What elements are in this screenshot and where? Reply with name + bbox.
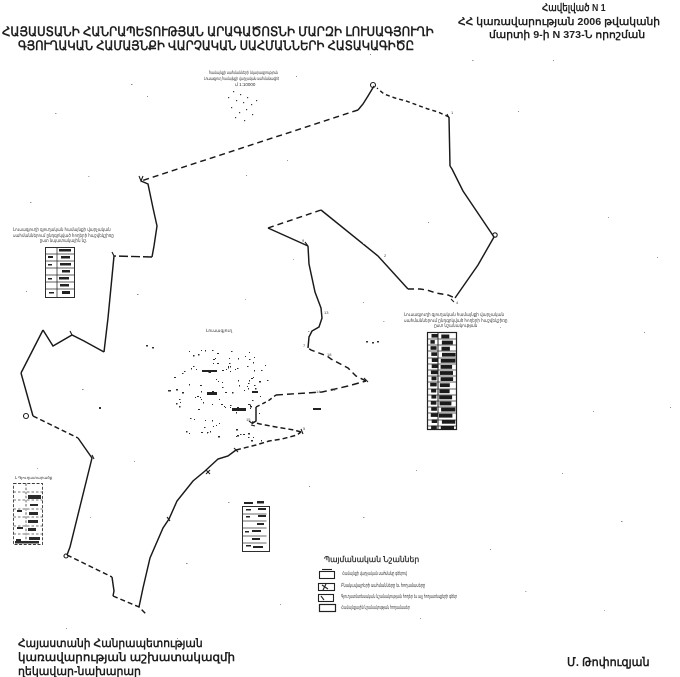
svg-text:5: 5 (303, 426, 306, 431)
svg-text:2: 2 (384, 253, 387, 258)
svg-text:13: 13 (324, 310, 329, 315)
svg-text:24: 24 (331, 387, 336, 392)
svg-text:7: 7 (303, 343, 306, 348)
svg-text:Լ Գյուղատարածք: Լ Գյուղատարածք (15, 475, 53, 480)
svg-text:18: 18 (327, 352, 332, 357)
svg-text:14: 14 (316, 389, 321, 394)
svg-text:15: 15 (246, 417, 251, 422)
svg-text:9: 9 (302, 238, 305, 243)
svg-text:1: 1 (451, 110, 454, 115)
svg-text:4: 4 (456, 300, 459, 305)
